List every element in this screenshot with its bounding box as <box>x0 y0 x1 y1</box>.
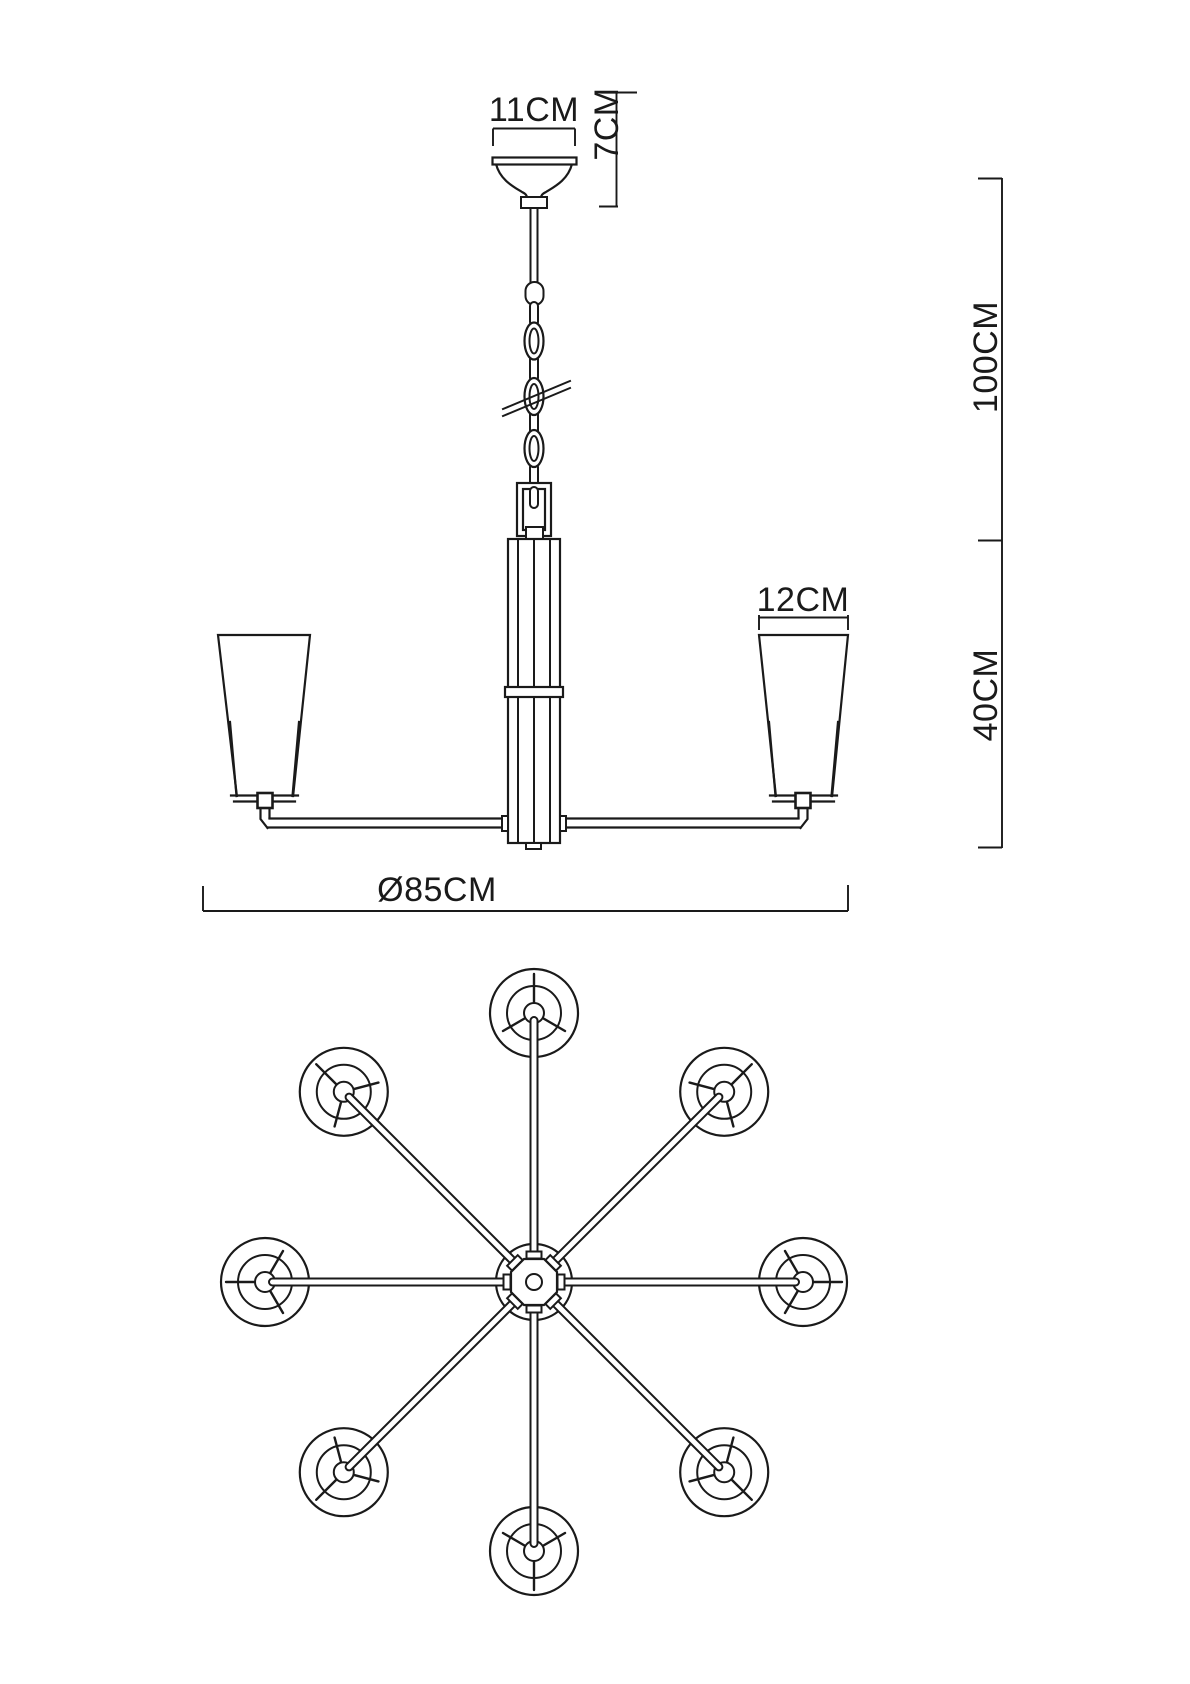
right-shade-socket <box>796 793 811 808</box>
suspension-rod <box>531 204 538 288</box>
dim-label-overall-diameter: Ø85CM <box>377 871 497 909</box>
suspension-chain <box>503 282 570 507</box>
dim-label-body-height: 40CM <box>967 649 1005 742</box>
ceiling-canopy-bell <box>496 164 572 198</box>
chandelier-dimension-drawing: 11CM 7CM <box>0 0 1190 1684</box>
plan-arm-top-left <box>282 1030 549 1297</box>
right-arm <box>565 819 801 828</box>
plan-view <box>221 969 847 1595</box>
dim-line-canopy-width <box>493 129 575 147</box>
dim-line-shade-width <box>759 615 848 630</box>
column-collar <box>505 687 563 697</box>
left-shade-socket <box>258 793 273 808</box>
plan-arm-top <box>490 969 578 1259</box>
dim-label-canopy-height: 7CM <box>588 87 626 160</box>
left-arm <box>268 819 504 828</box>
right-arm-connector <box>560 816 566 831</box>
canopy-neck <box>521 197 547 208</box>
plan-arm-top-right <box>520 1030 787 1297</box>
left-arm-connector <box>502 816 508 831</box>
dim-label-suspension-length: 100CM <box>967 301 1005 413</box>
plan-arm-bottom-right <box>520 1268 787 1535</box>
plan-arm-bottom-left <box>282 1268 549 1535</box>
left-shade <box>218 635 310 797</box>
plan-arm-left <box>221 1238 511 1326</box>
technical-drawing-page: 11CM 7CM <box>0 0 1190 1684</box>
plan-arm-bottom <box>490 1306 578 1596</box>
dim-label-canopy-width: 11CM <box>489 91 579 129</box>
dim-line-heights <box>978 178 1002 848</box>
hub-center-hole <box>526 1274 542 1290</box>
dim-line-overall-diameter <box>203 885 848 911</box>
dim-label-shade-width: 12CM <box>757 581 850 619</box>
plan-arm-right <box>558 1238 848 1326</box>
column-bottom-cap <box>526 843 541 849</box>
ceiling-canopy-plate <box>493 158 577 165</box>
side-view: 11CM 7CM <box>203 87 1005 911</box>
chain-link-in-bracket <box>530 487 538 508</box>
